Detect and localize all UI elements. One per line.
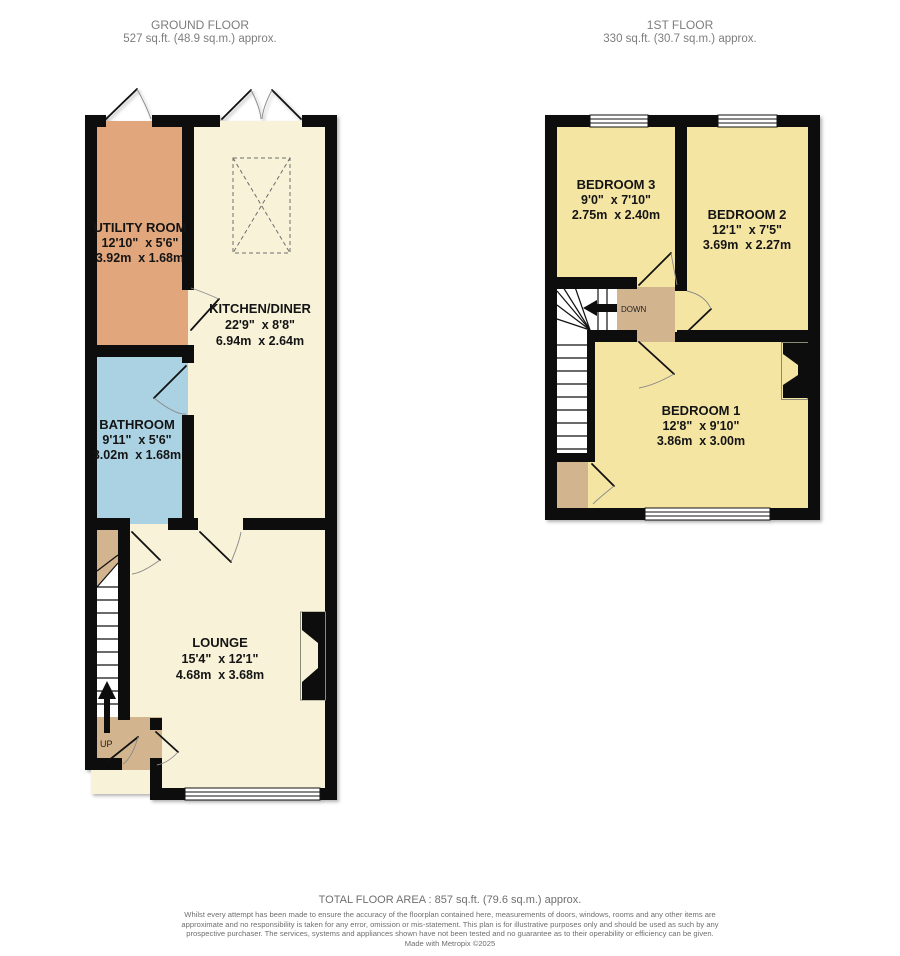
floorplan-page: GROUND FLOOR 527 sq.ft. (48.9 sq.m.) app… [0, 0, 900, 956]
room-imperial: 15'4" x 12'1" [182, 652, 259, 666]
kitchen-french-door-right [272, 90, 301, 119]
bedroom2-label: BEDROOM 2 12'1" x 7'5" 3.69m x 2.27m [703, 207, 791, 252]
bedroom1-label: BEDROOM 1 12'8" x 9'10" 3.86m x 3.00m [657, 403, 745, 448]
room-metric: 6.94m x 2.64m [216, 334, 304, 348]
room-imperial: 22'9" x 8'8" [225, 318, 295, 332]
room-name: KITCHEN/DINER [209, 301, 311, 316]
room-name: BATHROOM [99, 417, 175, 432]
ground-floor-header: GROUND FLOOR 527 sq.ft. (48.9 sq.m.) app… [80, 18, 320, 46]
bedroom3-label: BEDROOM 3 9'0" x 7'10" 2.75m x 2.40m [572, 177, 660, 222]
ground-floor-area: 527 sq.ft. (48.9 sq.m.) approx. [80, 32, 320, 46]
bedroom1-window [645, 508, 770, 520]
kitchen-french-door-left [222, 90, 251, 119]
room-metric: 3.86m x 3.00m [657, 434, 745, 448]
room-metric: 2.75m x 2.40m [572, 208, 660, 222]
room-name: BEDROOM 2 [708, 207, 787, 222]
room-imperial: 12'8" x 9'10" [663, 419, 740, 433]
room-metric: 3.92m x 1.68m [96, 251, 184, 265]
ground-floor-title: GROUND FLOOR [80, 18, 320, 32]
metropix-credit: Made with Metropix ©2025 [0, 939, 900, 949]
down-label: DOWN [621, 305, 647, 314]
utility-external-door [106, 89, 137, 119]
room-name: BEDROOM 1 [662, 403, 741, 418]
bedroom2-window [718, 115, 777, 127]
room-name: BEDROOM 3 [577, 177, 656, 192]
room-name: LOUNGE [192, 635, 248, 650]
room-imperial: 12'10" x 5'6" [102, 236, 179, 250]
room-metric: 3.69m x 2.27m [703, 238, 791, 252]
first-floor-title: 1ST FLOOR [560, 18, 800, 32]
front-door-opening [122, 758, 150, 770]
lounge-window [185, 788, 320, 800]
first-floor-header: 1ST FLOOR 330 sq.ft. (30.7 sq.m.) approx… [560, 18, 800, 46]
first-floor-plan: DOWN [535, 85, 830, 530]
total-floor-area: TOTAL FLOOR AREA : 857 sq.ft. (79.6 sq.m… [0, 893, 900, 907]
cupboard-floor [557, 462, 588, 508]
up-arrow-shaft [104, 697, 110, 733]
room-imperial: 9'0" x 7'10" [581, 193, 651, 207]
room-imperial: 9'11" x 5'6" [102, 433, 171, 447]
room-metric: 3.02m x 1.68m [93, 448, 181, 462]
bathroom-label: BATHROOM 9'11" x 5'6" 3.02m x 1.68m [93, 417, 181, 462]
down-arrow-shaft [597, 304, 617, 312]
first-floor-area: 330 sq.ft. (30.7 sq.m.) approx. [560, 32, 800, 46]
footer: TOTAL FLOOR AREA : 857 sq.ft. (79.6 sq.m… [0, 893, 900, 948]
room-imperial: 12'1" x 7'5" [712, 223, 782, 237]
up-label: UP [100, 739, 113, 749]
room-name: UTILITY ROOM [94, 220, 187, 235]
disclaimer-text: Whilst every attempt has been made to en… [178, 910, 723, 939]
room-metric: 4.68m x 3.68m [176, 668, 264, 682]
ground-floor-plan: UP [80, 85, 345, 810]
bedroom3-window [590, 115, 648, 127]
utility-room-label: UTILITY ROOM 12'10" x 5'6" 3.92m x 1.68m [94, 220, 187, 265]
